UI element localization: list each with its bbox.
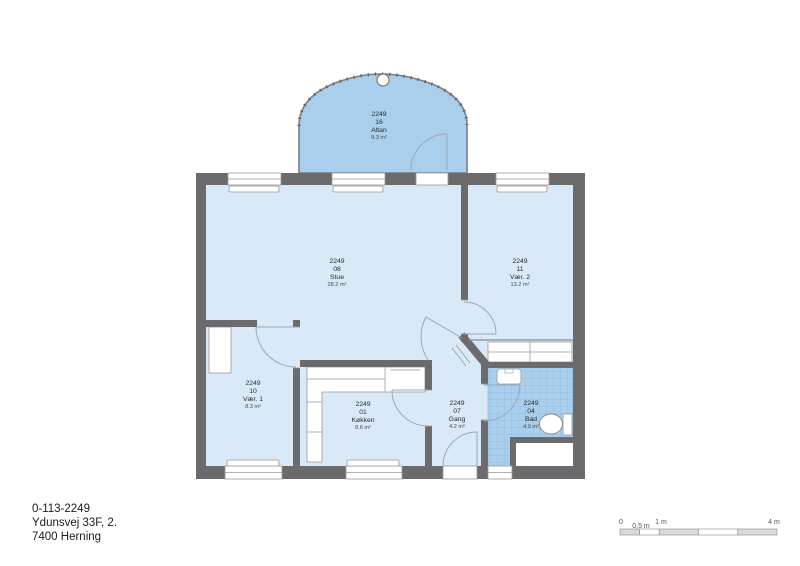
room-vaer2-name: Vær. 2 xyxy=(510,274,530,281)
room-altan-name: Altan xyxy=(371,127,387,134)
room-koekken-number: 01 xyxy=(359,409,367,416)
wall-left xyxy=(196,173,206,479)
wall-koekken-gang-top xyxy=(425,360,432,390)
room-gang-area: 4.2 m² xyxy=(449,424,465,430)
bathroom-sink xyxy=(497,369,521,384)
balcony-floor xyxy=(299,74,467,173)
room-altan-number: 16 xyxy=(375,119,383,126)
bottom-right-recess xyxy=(516,443,573,466)
room-bad-building: 2249 xyxy=(523,400,538,407)
wall-gang-bad-bottom xyxy=(481,420,488,466)
scale-bar: 0 0,5 m 1 m 4 m xyxy=(619,519,780,535)
room-vaer2-building: 2249 xyxy=(512,258,527,265)
scale-seg-1-2 xyxy=(659,529,698,535)
wall-koekken-top xyxy=(300,360,432,367)
room-gang-name: Gang xyxy=(449,416,466,423)
wall-koekken-gang-bottom xyxy=(425,426,432,466)
room-bad-name: Bad xyxy=(525,416,537,423)
window-stue-1 xyxy=(228,173,281,185)
room-vaer1-name: Vær. 1 xyxy=(243,396,263,403)
room-gang-building: 2249 xyxy=(449,400,464,407)
room-stue-number: 08 xyxy=(333,266,341,273)
wall-stue-vaer2 xyxy=(461,185,468,300)
room-stue-building: 2249 xyxy=(329,258,344,265)
room-vaer1-number: 10 xyxy=(249,388,257,395)
room-bad-number: 04 xyxy=(527,408,535,415)
scale-seg-3-4 xyxy=(738,529,777,535)
wall-stue-vaer1 xyxy=(206,320,257,327)
room-altan-building: 2249 xyxy=(371,111,386,118)
address-city: 7400 Herning xyxy=(32,531,101,543)
scale-label-4: 4 m xyxy=(768,519,780,526)
balcony-altan xyxy=(299,74,467,173)
window-vaer2 xyxy=(496,173,549,185)
toilet-bowl xyxy=(540,414,563,434)
scale-label-05: 0,5 m xyxy=(632,523,650,530)
room-vaer1-building: 2249 xyxy=(245,380,260,387)
room-stue-area: 28.2 m² xyxy=(328,282,347,288)
address-street: Ydunsvej 33F, 2. xyxy=(32,517,117,529)
wall-recess-top xyxy=(510,437,573,443)
entrance-door-opening xyxy=(443,466,477,479)
scale-label-1: 1 m xyxy=(655,519,667,526)
room-bad-area: 4.9 m² xyxy=(523,424,539,430)
wall-vaer1-koekken-top xyxy=(293,320,300,327)
room-koekken-building: 2249 xyxy=(355,401,370,408)
floorplan-drawing: 2249 16 Altan 9.3 m² 2249 08 Stue 28.2 m… xyxy=(0,0,800,566)
wall-bad-top xyxy=(481,362,573,368)
window-vaer1 xyxy=(225,466,282,479)
address-id: 0-113-2249 xyxy=(32,503,90,515)
room-koekken-name: Køkken xyxy=(351,417,374,424)
room-vaer2-number: 11 xyxy=(516,266,523,273)
scale-label-0: 0 xyxy=(619,519,623,526)
room-koekken-area: 8.6 m² xyxy=(355,425,371,431)
toilet-tank xyxy=(563,414,572,435)
window-bad xyxy=(488,466,512,479)
room-vaer2-area: 13.2 m² xyxy=(511,282,530,288)
balcony-drain xyxy=(377,74,389,86)
balcony-door-opening xyxy=(416,173,448,185)
window-koekken xyxy=(346,466,402,479)
wall-vaer1-koekken-bottom xyxy=(293,368,300,466)
scale-seg-2-3 xyxy=(699,529,738,535)
room-altan-area: 9.3 m² xyxy=(371,135,387,141)
window-stue-2 xyxy=(332,173,385,185)
wall-recess-left xyxy=(510,437,516,466)
address-block: 0-113-2249 Ydunsvej 33F, 2. 7400 Herning xyxy=(32,503,117,543)
wardrobe-vaer1 xyxy=(209,327,231,373)
floorplan-page: 2249 16 Altan 9.3 m² 2249 08 Stue 28.2 m… xyxy=(0,0,800,566)
room-vaer1-area: 8.3 m² xyxy=(245,404,261,410)
room-gang-number: 07 xyxy=(453,408,461,415)
wall-right xyxy=(573,173,585,479)
room-stue-name: Stue xyxy=(330,274,344,281)
